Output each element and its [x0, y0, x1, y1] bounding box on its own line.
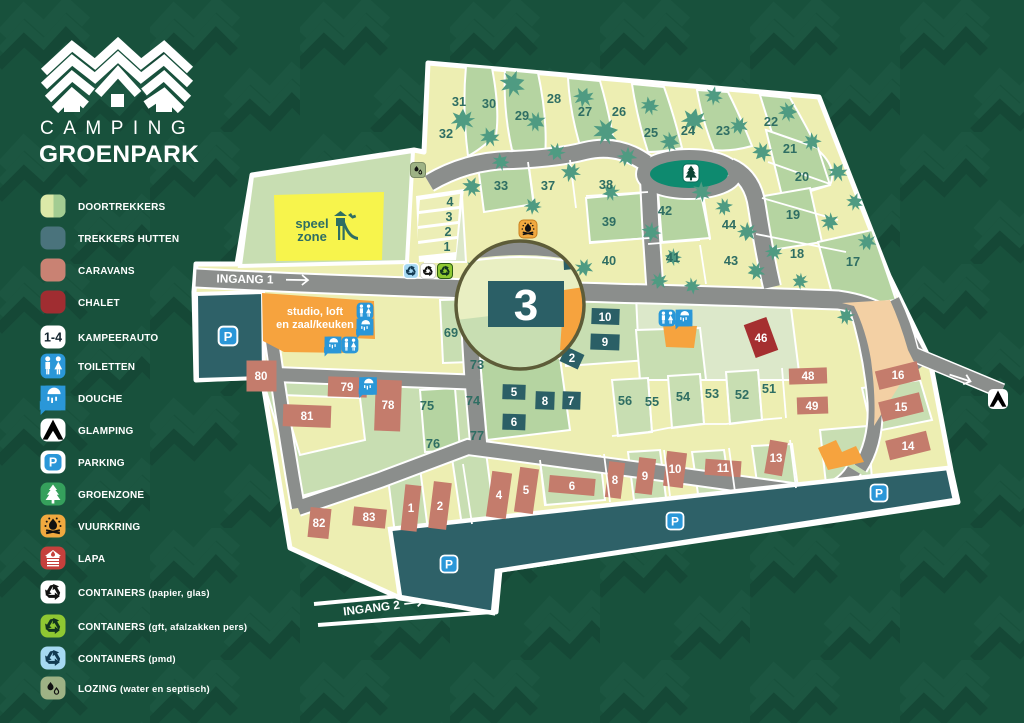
- svg-text:75: 75: [420, 398, 434, 413]
- svg-text:9: 9: [602, 337, 608, 349]
- svg-text:11: 11: [717, 463, 730, 475]
- svg-text:22: 22: [764, 114, 778, 129]
- svg-text:38: 38: [599, 177, 613, 192]
- svg-text:PARKING: PARKING: [78, 458, 125, 469]
- svg-text:CARAVANS: CARAVANS: [78, 266, 135, 277]
- svg-text:54: 54: [676, 389, 691, 404]
- svg-text:31: 31: [452, 94, 466, 109]
- svg-text:19: 19: [786, 207, 800, 222]
- svg-text:CONTAINERS (gft, afalzakken pe: CONTAINERS (gft, afalzakken pers): [78, 622, 247, 633]
- svg-text:1: 1: [444, 240, 451, 254]
- svg-text:9: 9: [642, 471, 648, 483]
- svg-text:56: 56: [618, 393, 632, 408]
- svg-text:4: 4: [447, 195, 454, 209]
- svg-text:16: 16: [892, 370, 905, 382]
- svg-text:5: 5: [511, 387, 518, 399]
- svg-text:82: 82: [313, 518, 326, 530]
- svg-text:27: 27: [578, 104, 592, 119]
- svg-text:20: 20: [795, 169, 809, 184]
- svg-text:43: 43: [724, 253, 738, 268]
- svg-text:2: 2: [445, 225, 452, 239]
- svg-text:GROENZONE: GROENZONE: [78, 490, 144, 501]
- svg-text:46: 46: [755, 333, 768, 345]
- svg-text:28: 28: [547, 91, 561, 106]
- svg-text:79: 79: [341, 382, 354, 394]
- svg-text:24: 24: [681, 123, 696, 138]
- svg-text:DOORTREKKERS: DOORTREKKERS: [78, 202, 166, 213]
- svg-text:1: 1: [408, 503, 415, 515]
- svg-text:55: 55: [645, 394, 659, 409]
- svg-text:37: 37: [541, 178, 555, 193]
- svg-text:42: 42: [658, 203, 672, 218]
- svg-text:2: 2: [437, 501, 443, 513]
- svg-text:LOZING (water en septisch): LOZING (water en septisch): [78, 684, 210, 695]
- svg-text:10: 10: [669, 464, 682, 476]
- svg-text:TOILETTEN: TOILETTEN: [78, 362, 135, 373]
- svg-text:80: 80: [255, 371, 268, 383]
- svg-text:P: P: [49, 456, 57, 470]
- svg-text:73: 73: [470, 357, 484, 372]
- svg-text:CONTAINERS (papier, glas): CONTAINERS (papier, glas): [78, 588, 210, 599]
- svg-text:77: 77: [470, 428, 484, 443]
- svg-text:6: 6: [511, 417, 517, 429]
- svg-text:18: 18: [790, 246, 804, 261]
- svg-text:81: 81: [301, 411, 314, 423]
- svg-text:en zaal/keuken: en zaal/keuken: [276, 319, 354, 331]
- svg-text:10: 10: [599, 312, 612, 324]
- svg-text:48: 48: [802, 371, 815, 383]
- svg-text:7: 7: [568, 396, 574, 408]
- svg-text:5: 5: [523, 485, 530, 497]
- svg-text:14: 14: [902, 441, 915, 453]
- svg-text:DOUCHE: DOUCHE: [78, 394, 123, 405]
- svg-text:3: 3: [446, 210, 453, 224]
- svg-text:53: 53: [705, 386, 719, 401]
- svg-text:studio, loft: studio, loft: [287, 306, 344, 318]
- svg-text:VUURKRING: VUURKRING: [78, 522, 140, 533]
- svg-text:69: 69: [444, 325, 458, 340]
- svg-text:CHALET: CHALET: [78, 298, 120, 309]
- svg-text:44: 44: [722, 217, 737, 232]
- svg-text:8: 8: [542, 396, 549, 408]
- svg-text:23: 23: [716, 123, 730, 138]
- svg-text:INGANG 1: INGANG 1: [216, 272, 274, 287]
- svg-text:CAMPING: CAMPING: [40, 118, 195, 139]
- svg-text:74: 74: [466, 393, 481, 408]
- svg-text:1-4: 1-4: [44, 331, 62, 345]
- svg-text:CONTAINERS (pmd): CONTAINERS (pmd): [78, 654, 176, 665]
- svg-text:33: 33: [494, 178, 508, 193]
- svg-text:41: 41: [666, 250, 680, 265]
- svg-text:17: 17: [846, 254, 860, 269]
- svg-text:52: 52: [735, 387, 749, 402]
- svg-text:zone: zone: [297, 229, 327, 244]
- svg-text:3: 3: [514, 281, 538, 330]
- svg-text:21: 21: [783, 141, 797, 156]
- svg-text:15: 15: [895, 402, 908, 414]
- svg-text:GLAMPING: GLAMPING: [78, 426, 134, 437]
- svg-text:83: 83: [363, 512, 376, 524]
- svg-text:26: 26: [612, 104, 626, 119]
- svg-text:2: 2: [569, 353, 575, 365]
- svg-text:78: 78: [382, 400, 395, 412]
- svg-text:TREKKERS HUTTEN: TREKKERS HUTTEN: [78, 234, 179, 245]
- svg-text:32: 32: [439, 126, 453, 141]
- svg-text:29: 29: [515, 108, 529, 123]
- svg-text:LAPA: LAPA: [78, 554, 105, 565]
- svg-text:51: 51: [762, 381, 776, 396]
- svg-text:49: 49: [806, 401, 819, 413]
- svg-text:6: 6: [569, 481, 575, 493]
- svg-text:8: 8: [612, 475, 619, 487]
- svg-text:4: 4: [496, 490, 503, 502]
- svg-text:76: 76: [426, 436, 440, 451]
- svg-text:KAMPEERAUTO: KAMPEERAUTO: [78, 333, 158, 344]
- svg-text:30: 30: [482, 96, 496, 111]
- svg-text:40: 40: [602, 253, 616, 268]
- svg-text:GROENPARK: GROENPARK: [39, 141, 199, 168]
- svg-text:39: 39: [602, 214, 616, 229]
- svg-text:25: 25: [644, 125, 658, 140]
- svg-text:13: 13: [770, 453, 783, 465]
